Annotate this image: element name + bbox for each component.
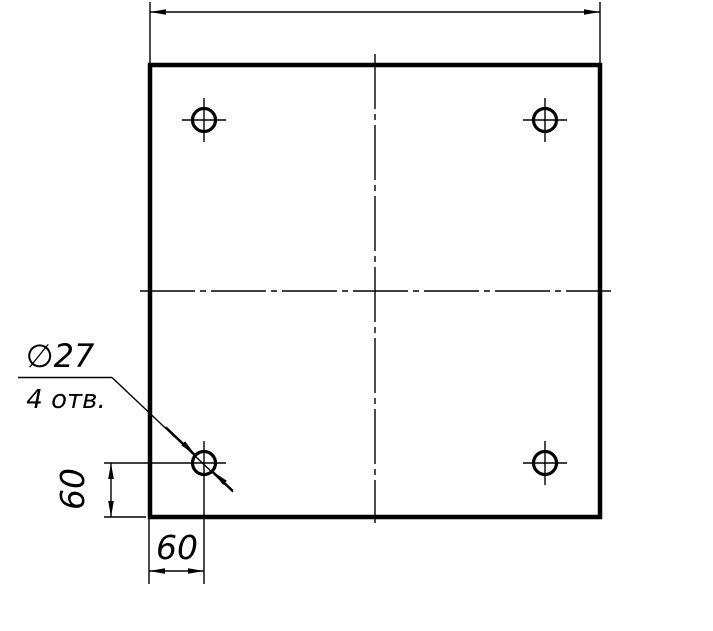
- dimension-hole-offset-vertical: 60: [53, 463, 146, 517]
- callout-diameter-label: ∅27: [26, 337, 95, 375]
- diameter-arrow-upper: [166, 427, 195, 455]
- engineering-drawing-canvas: 60 60 ∅27 4 отв.: [0, 0, 713, 631]
- hole-bottom-right: [523, 441, 567, 485]
- callout-hole-diameter: ∅27 4 отв.: [18, 337, 233, 492]
- dim-value-vertical: 60: [53, 468, 92, 510]
- callout-count-label: 4 отв.: [26, 385, 105, 415]
- dim-value-horizontal: 60: [156, 528, 198, 567]
- leader-diagonal: [112, 378, 233, 493]
- hole-top-right: [523, 98, 567, 142]
- hole-top-left: [182, 98, 226, 142]
- diameter-arrow-lower: [213, 472, 233, 491]
- dimension-hole-offset-horizontal: 60: [149, 519, 204, 584]
- drawing-page: 60 60 ∅27 4 отв.: [0, 0, 713, 631]
- dimension-overall-width: [150, 2, 600, 63]
